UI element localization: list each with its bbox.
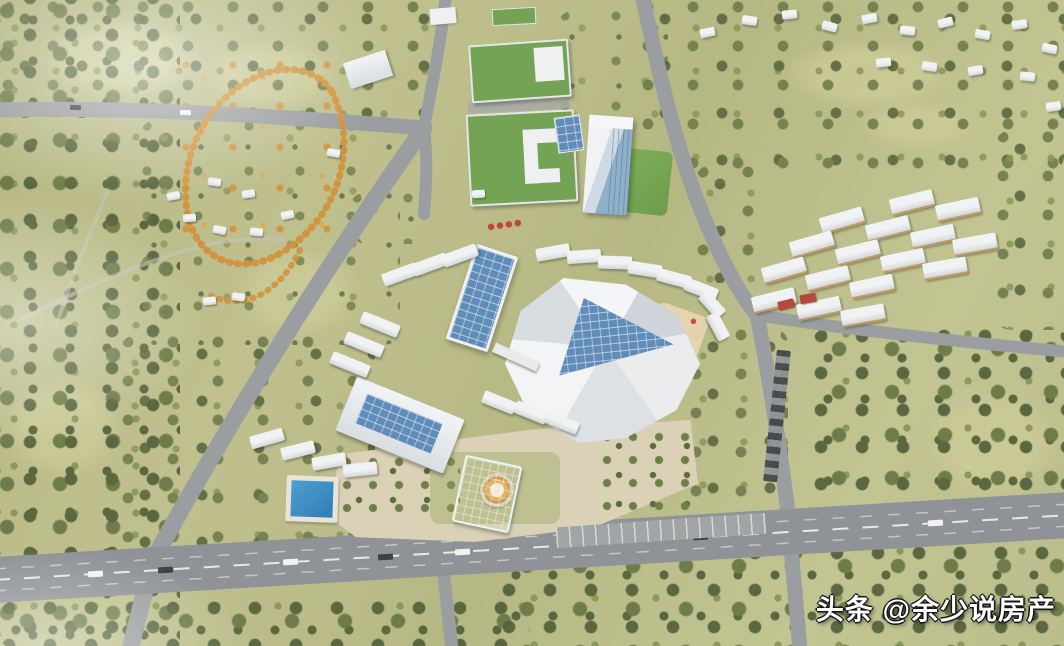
pool-water — [290, 480, 333, 517]
retail-row-unit — [889, 189, 936, 216]
retail-row-unit — [805, 265, 852, 292]
retail-row-unit — [835, 239, 882, 266]
retail-row-unit — [865, 215, 912, 242]
retail-row-unit — [922, 256, 968, 280]
park-pavilion — [208, 177, 222, 187]
retail-row-unit — [880, 248, 927, 274]
villa-house — [782, 9, 798, 20]
roof-white-patch — [534, 46, 565, 81]
small-white-building-top — [429, 7, 456, 25]
watermark: 头条 @余少说房产 — [816, 588, 1056, 628]
mall-skylight-glass-triangle — [551, 289, 677, 396]
villa-house — [921, 61, 937, 72]
retail-row-unit — [840, 303, 886, 327]
roof-white-c-bottom — [525, 168, 561, 184]
forest-pocket-right — [695, 165, 763, 283]
shop-unit — [567, 249, 602, 264]
plaza-tree-grove-right — [600, 430, 695, 515]
park-pavilion — [232, 292, 246, 302]
shop-unit — [535, 243, 571, 262]
retail-row-unit — [761, 256, 808, 284]
retail-row-unit — [819, 206, 866, 234]
retail-row-unit — [910, 224, 957, 250]
tower-roof-cap — [589, 115, 634, 130]
retail-row-unit — [952, 232, 998, 256]
park-pavilion — [250, 227, 264, 236]
bus-at-dropoff — [472, 190, 485, 199]
retail-row-unit — [935, 197, 982, 223]
swimming-pool — [285, 475, 339, 523]
aerial-rendering-scene: 头条 @余少说房产 — [0, 0, 1064, 646]
retail-row-unit — [789, 230, 836, 258]
glass-atrium — [554, 114, 585, 153]
villa-house — [900, 25, 916, 36]
watermark-text: 头条 @余少说房产 — [816, 594, 1056, 625]
villa-house — [1020, 71, 1036, 82]
small-green-roof-top — [492, 7, 537, 26]
forest-below-highway-left — [0, 600, 530, 646]
villa-house — [876, 57, 892, 68]
park-pavilion — [183, 214, 197, 223]
villa-house — [741, 15, 757, 26]
forest-region-bottom-right — [812, 328, 1064, 510]
forest-region-right-strip — [995, 130, 1064, 330]
shop-unit — [481, 390, 517, 415]
park-pavilion — [203, 296, 217, 305]
grove-near-complex — [350, 192, 432, 244]
green-roof-building-a — [468, 39, 572, 104]
office-tower — [583, 115, 634, 216]
red-sculpture-row — [485, 218, 522, 234]
retail-row-unit — [849, 274, 896, 300]
